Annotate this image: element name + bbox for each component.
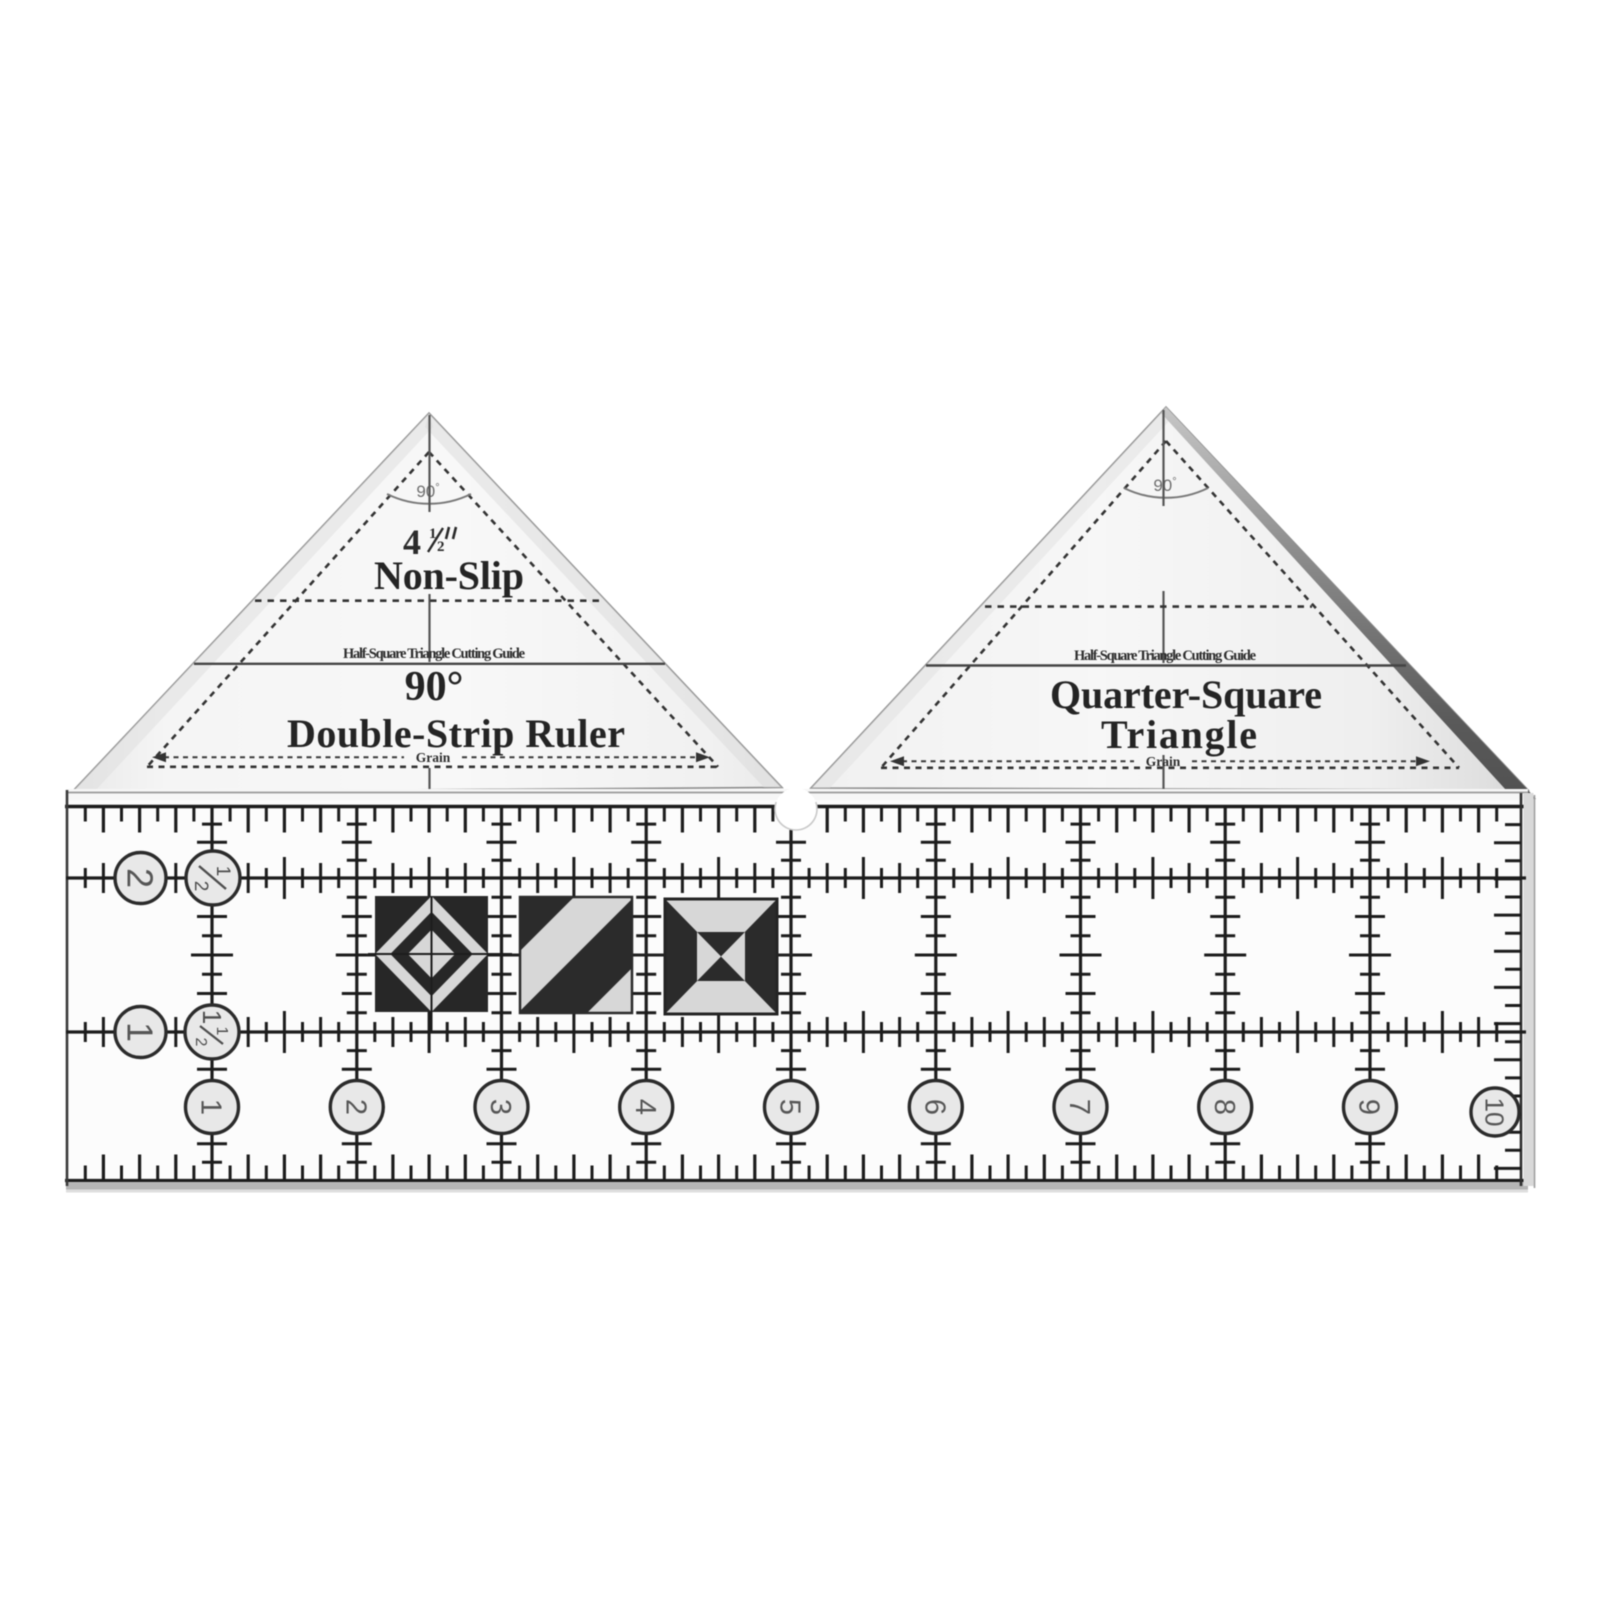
svg-text:4: 4: [629, 1099, 661, 1115]
svg-text:1: 1: [195, 1099, 227, 1115]
svg-text:1: 1: [197, 1010, 227, 1024]
svg-text:2: 2: [120, 868, 161, 888]
svg-text:1: 1: [212, 866, 233, 877]
svg-text:Double-Strip Ruler: Double-Strip Ruler: [287, 711, 625, 756]
svg-text:6: 6: [918, 1099, 950, 1115]
svg-text:5: 5: [774, 1099, 806, 1115]
svg-text:90°: 90°: [405, 664, 464, 710]
svg-text:Non-Slip: Non-Slip: [374, 553, 524, 598]
svg-text:9: 9: [1353, 1099, 1385, 1115]
svg-text:1: 1: [120, 1022, 161, 1042]
svg-text:8: 8: [1208, 1099, 1240, 1115]
svg-text:2: 2: [190, 881, 211, 892]
svg-text:Half-Square Triangle Cutting G: Half-Square Triangle Cutting Guide: [343, 646, 526, 662]
svg-text:10: 10: [1480, 1098, 1510, 1127]
svg-text:2: 2: [339, 1099, 371, 1115]
svg-text:3: 3: [484, 1099, 516, 1115]
svg-text:1: 1: [213, 1027, 230, 1036]
svg-text:2: 2: [192, 1038, 209, 1047]
svg-text:Half-Square Triangle Cutting G: Half-Square Triangle Cutting Guide: [1074, 648, 1257, 664]
svg-text:Grain: Grain: [1146, 754, 1181, 769]
svg-text:Grain: Grain: [416, 750, 451, 765]
svg-text:7: 7: [1063, 1099, 1095, 1115]
svg-text:Quarter-Square: Quarter-Square: [1050, 672, 1322, 717]
